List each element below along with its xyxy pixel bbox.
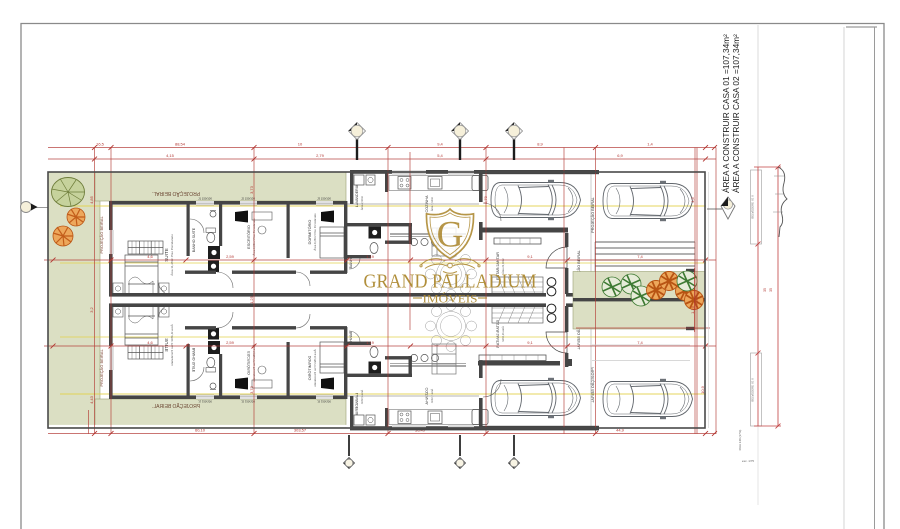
svg-text:PROJEÇÃO BEIRAL.: PROJEÇÃO BEIRAL.	[152, 190, 200, 197]
svg-text:Área 9,28m² Piso Porcelanato: Área 9,28m² Piso Porcelanato	[313, 213, 317, 251]
svg-text:4,43: 4,43	[89, 395, 94, 404]
svg-text:4,15: 4,15	[166, 153, 175, 158]
svg-text:2,59: 2,59	[226, 340, 235, 345]
svg-text:2,59: 2,59	[226, 254, 235, 259]
svg-text:3,73: 3,73	[249, 385, 254, 394]
svg-text:5,4: 5,4	[437, 153, 443, 158]
svg-text:3,73: 3,73	[249, 185, 254, 194]
svg-text:1,25: 1,25	[249, 295, 254, 304]
svg-text:3,2: 3,2	[89, 306, 94, 312]
svg-text:9,1: 9,1	[527, 254, 533, 259]
svg-text:Área 11,28m² Piso Porcelanato: Área 11,28m² Piso Porcelanato	[170, 234, 174, 276]
svg-text:J3 150/100: J3 150/100	[317, 196, 331, 200]
svg-text:RUA 140 (17m): RUA 140 (17m)	[738, 430, 742, 451]
svg-text:1,19: 1,19	[366, 254, 375, 259]
svg-text:Área 2,10m²: Área 2,10m²	[360, 196, 364, 210]
svg-text:9,1: 9,1	[527, 340, 533, 345]
svg-text:GRAND PALLADIUM: GRAND PALLADIUM	[364, 271, 537, 293]
svg-text:IMÓVEIS: IMÓVEIS	[423, 292, 478, 306]
svg-text:DORMITÓRIO: DORMITÓRIO	[307, 220, 312, 245]
svg-text:88,54: 88,54	[175, 142, 186, 147]
svg-text:10: 10	[298, 142, 303, 147]
svg-text:16,5: 16,5	[96, 142, 105, 147]
svg-text:1,4: 1,4	[647, 142, 653, 147]
svg-text:6,9: 6,9	[617, 153, 623, 158]
svg-text:35: 35	[763, 288, 767, 292]
svg-text:4,85: 4,85	[89, 195, 94, 204]
svg-text:4,6: 4,6	[147, 254, 153, 259]
svg-text:ESCRITÓRIO: ESCRITÓRIO	[246, 225, 251, 249]
svg-text:BELVEDERE I E II: BELVEDERE I E II	[751, 378, 755, 401]
svg-text:ÁREA A CONSTRUIR CASA 02 =107,: ÁREA A CONSTRUIR CASA 02 =107,34m²	[731, 34, 741, 193]
svg-text:PROJEÇÃO BEIRAL: PROJEÇÃO BEIRAL	[99, 216, 104, 254]
svg-text:2,79: 2,79	[316, 153, 325, 158]
svg-text:8,9: 8,9	[537, 142, 543, 147]
svg-text:1,19: 1,19	[366, 340, 375, 345]
svg-text:J2 150/100: J2 150/100	[241, 196, 255, 200]
svg-text:BANHO SUITE: BANHO SUITE	[192, 227, 196, 252]
svg-text:2,79: 2,79	[483, 195, 488, 204]
svg-text:4,6: 4,6	[147, 340, 153, 345]
svg-text:4,9: 4,9	[690, 196, 695, 202]
svg-text:PROJEÇÃO BEIRAL: PROJEÇÃO BEIRAL	[590, 197, 595, 232]
svg-text:ÁREA A CONSTRUIR CASA 01 =107,: ÁREA A CONSTRUIR CASA 01 =107,34m²	[721, 34, 731, 193]
svg-text:J1 150/100: J1 150/100	[198, 196, 212, 200]
svg-text:7,4: 7,4	[637, 340, 643, 345]
svg-text:7,4: 7,4	[637, 254, 643, 259]
svg-text:esc. 1/75: esc. 1/75	[742, 459, 755, 463]
svg-text:G: G	[437, 215, 464, 256]
svg-text:35: 35	[769, 288, 773, 292]
svg-text:9,4: 9,4	[437, 142, 443, 147]
svg-text:PROJEÇÃO BEIRAL: PROJEÇÃO BEIRAL	[99, 349, 104, 387]
svg-text:BELVEDERE I E II: BELVEDERE I E II	[751, 195, 755, 218]
